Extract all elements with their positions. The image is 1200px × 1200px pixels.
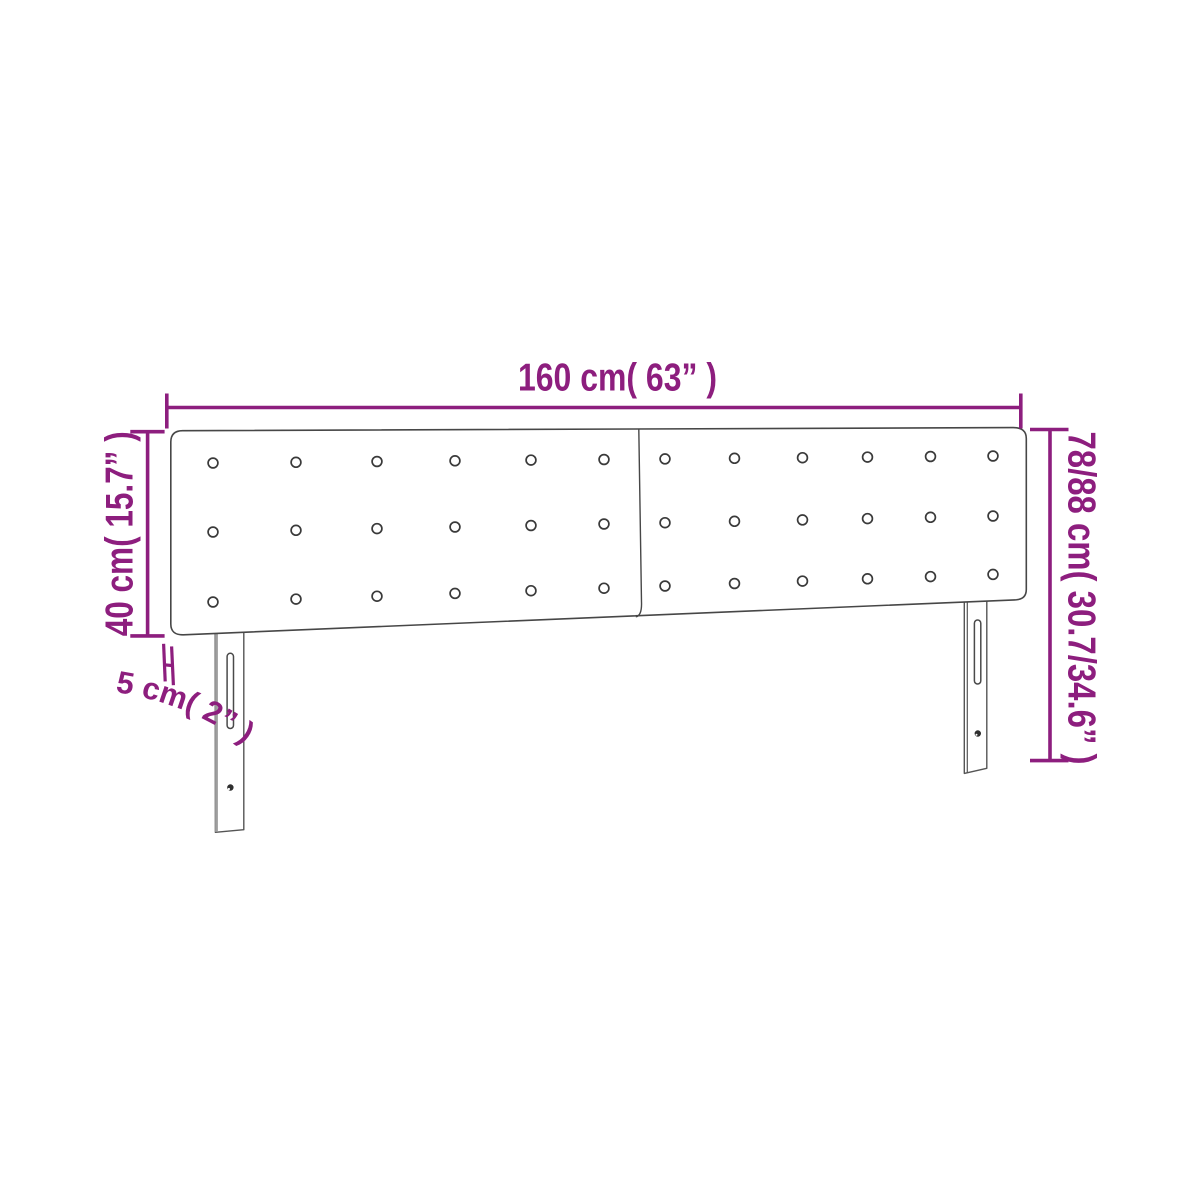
svg-text:78/88 cm( 30.7/34.6” ): 78/88 cm( 30.7/34.6” ) xyxy=(1060,432,1103,765)
svg-text:40 cm( 15.7” ): 40 cm( 15.7” ) xyxy=(99,431,142,636)
svg-text:160 cm( 63” ): 160 cm( 63” ) xyxy=(518,357,717,400)
